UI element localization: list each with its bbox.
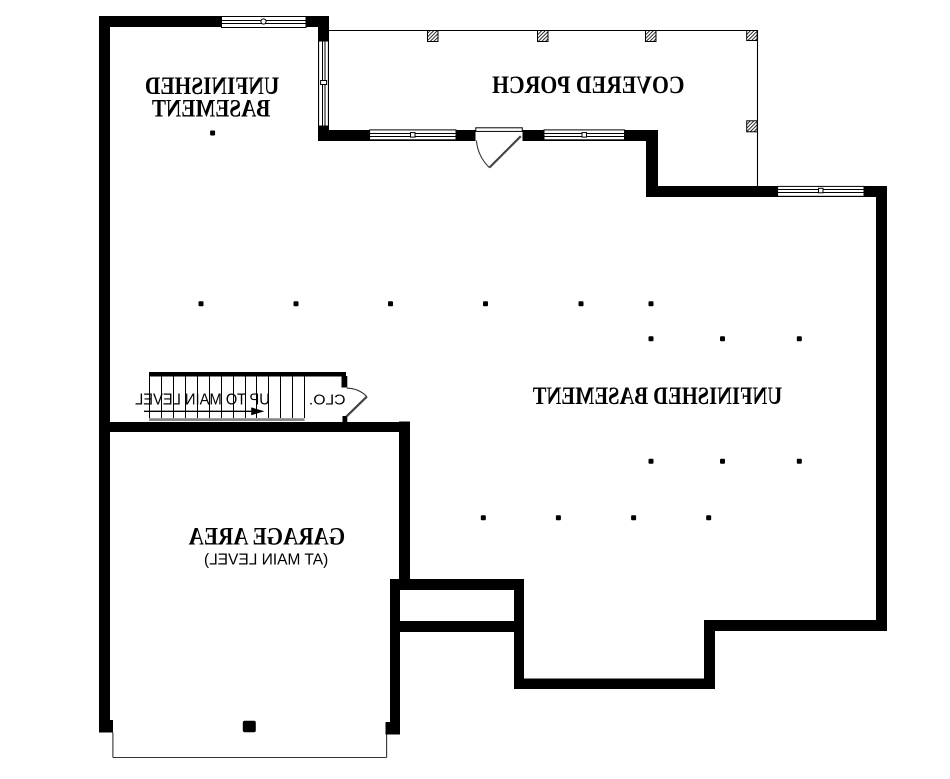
svg-text:BASEMENT: BASEMENT: [151, 95, 270, 123]
svg-text:UNFINISHED BASEMENT: UNFINISHED BASEMENT: [533, 382, 782, 409]
svg-text:UP TO MAIN LEVEL: UP TO MAIN LEVEL: [135, 391, 270, 409]
svg-text:CLO.: CLO.: [309, 392, 346, 408]
svg-text:COVERED PORCH: COVERED PORCH: [492, 72, 684, 100]
svg-text:GARAGE AREA: GARAGE AREA: [188, 523, 345, 551]
svg-text:(AT MAIN LEVEL): (AT MAIN LEVEL): [204, 552, 328, 569]
